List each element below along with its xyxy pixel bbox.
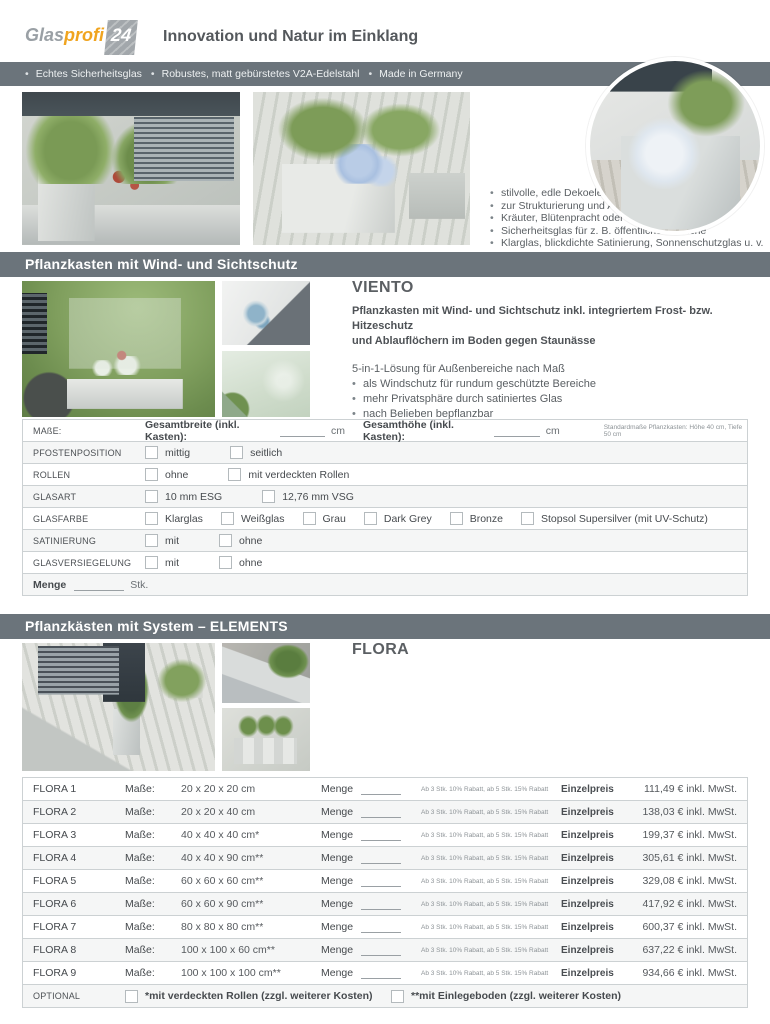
einzelpreis-label: Einzelpreis [561,945,627,956]
form-options: ohnemit verdeckten Rollen [145,468,389,481]
form-row-glasversiegelung: GLASVERSIEGELUNGmitohne [22,551,748,574]
option-label: Klarglas [165,513,203,525]
unit-label: cm [331,425,345,437]
product-name: FLORA 4 [33,852,125,864]
spacer [352,349,757,362]
flora-price-table: FLORA 1Maße:20 x 20 x 20 cmMengeAb 3 Stk… [22,778,748,1008]
checkbox-icon[interactable] [145,468,158,481]
menge-input[interactable] [361,898,401,910]
gesamtbreite-input[interactable] [280,425,325,437]
option-ohne[interactable]: ohne [219,534,262,547]
rabatt-note: Ab 3 Stk. 10% Rabatt, ab 5 Stk. 15% Raba… [421,878,561,885]
menge-unit-label: Stk. [130,579,148,591]
masse-label: Maße: [125,783,181,795]
terrace-photo-right [253,92,470,245]
einzelpreis-label: Einzelpreis [561,899,627,910]
product-name: FLORA 8 [33,944,125,956]
option-label: Grau [323,513,346,525]
option-mit[interactable]: mit [145,556,179,569]
rabatt-note: Ab 3 Stk. 10% Rabatt, ab 5 Stk. 15% Raba… [421,855,561,862]
masse-label: Maße: [125,944,181,956]
masse-label: Maße: [125,921,181,933]
page-header: Glasprofi24 Innovation und Natur im Eink… [0,0,770,62]
checkbox-icon[interactable] [145,490,158,503]
flora-edge-detail-photo [222,643,310,703]
flora-row-flora-2: FLORA 2Maße:20 x 20 x 40 cmMengeAb 3 Stk… [22,800,748,824]
product-size: 20 x 20 x 20 cm [181,783,321,795]
einzelpreis-label: Einzelpreis [561,807,627,818]
bullet-icon: • [25,68,29,80]
viento-bullet: als Windschutz für rundum geschützte Ber… [352,377,757,392]
product-name: FLORA 3 [33,829,125,841]
form-options: 10 mm ESG12,76 mm VSG [145,490,394,503]
menge-input[interactable] [361,944,401,956]
einzelpreis-label: Einzelpreis [561,968,627,979]
rabatt-note: Ab 3 Stk. 10% Rabatt, ab 5 Stk. 15% Raba… [421,809,561,816]
checkbox-icon[interactable] [391,990,404,1003]
option-label: **mit Einlegeboden (zzgl. weiterer Koste… [411,990,621,1002]
rabatt-note: Ab 3 Stk. 10% Rabatt, ab 5 Stk. 15% Raba… [421,901,561,908]
logo-part-glas: Glas [25,25,64,45]
checkbox-icon[interactable] [521,512,534,525]
menge-input[interactable] [361,783,401,795]
option-label: Bronze [470,513,503,525]
option-label: ohne [165,469,188,481]
product-name: FLORA 5 [33,875,125,887]
option-label: ohne [239,535,262,547]
form-row-satinierung: SATINIERUNGmitohne [22,529,748,552]
menge-field: Menge [321,852,421,864]
rabatt-note: Ab 3 Stk. 10% Rabatt, ab 5 Stk. 15% Raba… [421,947,561,954]
einzelpreis-label: Einzelpreis [561,830,627,841]
checkbox-icon[interactable] [219,534,232,547]
price-value: 637,22 € inkl. MwSt. [627,944,737,956]
form-options: mitohne [145,556,302,569]
rabatt-note: Ab 3 Stk. 10% Rabatt, ab 5 Stk. 15% Raba… [421,924,561,931]
masse-label: Maße: [125,898,181,910]
form-row-glasfarbe: GLASFARBEKlarglasWeißglasGrauDark GreyBr… [22,507,748,530]
form-row-rollen: ROLLENohnemit verdeckten Rollen [22,463,748,486]
price-value: 600,37 € inkl. MwSt. [627,921,737,933]
viento-desc-line: und Ablauflöchern im Boden gegen Staunäs… [352,334,757,349]
einzelpreis-label: Einzelpreis [561,784,627,795]
menge-label: Menge [321,875,353,887]
menge-label: Menge [321,898,353,910]
optional-label: OPTIONAL [33,991,125,1001]
product-size: 80 x 80 x 80 cm** [181,921,321,933]
rabatt-note: Ab 3 Stk. 10% Rabatt, ab 5 Stk. 15% Raba… [421,832,561,839]
feature-item: Made in Germany [379,68,462,80]
menge-field: Menge [321,921,421,933]
menge-label: Menge [321,783,353,795]
menge-field: Menge [321,829,421,841]
option-label: ohne [239,557,262,569]
menge-input[interactable] [361,806,401,818]
checkbox-icon[interactable] [221,512,234,525]
form-row-glasart: GLASART10 mm ESG12,76 mm VSG [22,485,748,508]
form-row-masse: MAßE: Gesamtbreite (inkl. Kasten): cm Ge… [22,419,748,442]
feature-item: Echtes Sicherheitsglas [36,68,142,80]
checkbox-icon[interactable] [125,990,138,1003]
product-size: 100 x 100 x 60 cm** [181,944,321,956]
page-tagline: Innovation und Natur im Einklang [163,28,418,46]
viento-photo-main [22,281,215,417]
section-title: Pflanzkästen mit System – ELEMENTS [25,618,288,634]
menge-input[interactable] [361,921,401,933]
menge-input[interactable] [361,852,401,864]
checkbox-icon[interactable] [145,556,158,569]
feature-item: Robustes, matt gebürstetes V2A-Edelstahl [162,68,360,80]
viento-order-form: MAßE: Gesamtbreite (inkl. Kasten): cm Ge… [22,420,748,596]
flora-product-rows: FLORA 1Maße:20 x 20 x 20 cmMengeAb 3 Stk… [22,777,748,985]
menge-input[interactable] [361,967,401,979]
menge-label: Menge [321,967,353,979]
menge-input[interactable] [74,579,124,591]
form-options: mitohne [145,534,302,547]
product-name: FLORA 1 [33,783,125,795]
section-title: Pflanzkasten mit Wind- und Sichtschutz [25,256,298,272]
form-row-label: ROLLEN [33,470,145,480]
flora-row-flora-5: FLORA 5Maße:60 x 60 x 60 cm**MengeAb 3 S… [22,869,748,893]
flora-row-photo [222,708,310,771]
option-ohne[interactable]: ohne [219,556,262,569]
form-options: KlarglasWeißglasGrauDark GreyBronzeStops… [145,512,726,525]
rabatt-note: Ab 3 Stk. 10% Rabatt, ab 5 Stk. 15% Raba… [421,970,561,977]
option-mit-verdeckten-rollen[interactable]: mit verdeckten Rollen [228,468,349,481]
intro-bullet: Sicherheitsglas für z. B. öffentliche Be… [490,225,770,238]
menge-field: Menge [321,967,421,979]
checkbox-icon[interactable] [364,512,377,525]
product-name: FLORA 9 [33,967,125,979]
option-label: seitlich [250,447,282,459]
option-label: mit verdeckten Rollen [248,469,349,481]
optional-options: *mit verdeckten Rollen (zzgl. weiterer K… [125,990,657,1003]
menge-label: Menge [321,921,353,933]
form-row-pfostenposition: PFOSTENPOSITIONmittigseitlich [22,441,748,464]
menge-label: Menge [321,829,353,841]
optional-row: OPTIONAL *mit verdeckten Rollen (zzgl. w… [22,984,748,1008]
checkbox-icon[interactable] [450,512,463,525]
option-klarglas[interactable]: Klarglas [145,512,203,525]
gesamthoehe-input[interactable] [494,425,539,437]
product-name: FLORA 6 [33,898,125,910]
bullet-icon: • [151,68,155,80]
viento-desc-line: Pflanzkasten mit Wind- und Sichtschutz i… [352,304,757,334]
checkbox-icon[interactable] [145,512,158,525]
flora-row-flora-7: FLORA 7Maße:80 x 80 x 80 cm**MengeAb 3 S… [22,915,748,939]
checkbox-icon[interactable] [303,512,316,525]
einzelpreis-label: Einzelpreis [561,853,627,864]
spacer [352,666,757,679]
form-option-rows: PFOSTENPOSITIONmittigseitlichROLLENohnem… [22,441,748,574]
product-name: FLORA 2 [33,806,125,818]
flora-row-flora-3: FLORA 3Maße:40 x 40 x 40 cm*MengeAb 3 St… [22,823,748,847]
optional-option-mit-einlegeboden-zzgl-weiterer-kosten[interactable]: **mit Einlegeboden (zzgl. weiterer Koste… [391,990,657,1003]
gesamtbreite-label: Gesamtbreite (inkl. Kasten): [145,419,272,443]
masse-label: Maße: [125,806,181,818]
flora-row-flora-9: FLORA 9Maße:100 x 100 x 100 cm**MengeAb … [22,961,748,985]
form-row-label: PFOSTENPOSITION [33,448,145,458]
standard-masse-note: Standardmaße Pflanzkasten: Höhe 40 cm, T… [604,424,747,438]
bullet-icon: • [368,68,372,80]
flora-description: FLORA [352,641,757,679]
flora-photo-main [22,643,215,771]
gesamthoehe-label: Gesamthöhe (inkl. Kasten): [363,419,486,443]
masse-label: Maße: [125,829,181,841]
option-label: Dark Grey [384,513,432,525]
einzelpreis-label: Einzelpreis [561,876,627,887]
menge-field: Menge [321,898,421,910]
optional-option-mit-verdeckten-rollen-zzgl-weiterer-kosten[interactable]: *mit verdeckten Rollen (zzgl. weiterer K… [125,990,391,1003]
flora-row-flora-1: FLORA 1Maße:20 x 20 x 20 cmMengeAb 3 Stk… [22,777,748,801]
viento-bullet: mehr Privatsphäre durch satiniertes Glas [352,392,757,407]
price-value: 305,61 € inkl. MwSt. [627,852,737,864]
checkbox-icon[interactable] [219,556,232,569]
einzelpreis-label: Einzelpreis [561,922,627,933]
price-value: 417,92 € inkl. MwSt. [627,898,737,910]
section-header-elements: Pflanzkästen mit System – ELEMENTS [0,614,770,639]
flora-row-flora-4: FLORA 4Maße:40 x 40 x 90 cm**MengeAb 3 S… [22,846,748,870]
rabatt-note: Ab 3 Stk. 10% Rabatt, ab 5 Stk. 15% Raba… [421,786,561,793]
price-value: 111,49 € inkl. MwSt. [627,783,737,795]
flora-row-flora-8: FLORA 8Maße:100 x 100 x 60 cm**MengeAb 3… [22,938,748,962]
product-size: 20 x 20 x 40 cm [181,806,321,818]
section-header-wind-sichtschutz: Pflanzkasten mit Wind- und Sichtschutz [0,252,770,277]
glass-detail-photo [222,351,310,417]
form-options: mittigseitlich [145,446,322,459]
product-size: 60 x 60 x 60 cm** [181,875,321,887]
option-wei-glas[interactable]: Weißglas [221,512,285,525]
catalog-page: Glasprofi24 Innovation und Natur im Eink… [0,0,770,1024]
option-label: mit [165,557,179,569]
planter-circle-photo [586,57,764,235]
viento-lead-line: 5-in-1-Lösung für Außenbereiche nach Maß [352,362,757,377]
option-12-76-mm-vsg[interactable]: 12,76 mm VSG [262,490,354,503]
menge-field: Menge [321,944,421,956]
logo-part-24: 24 [104,20,138,55]
product-size: 100 x 100 x 100 cm** [181,967,321,979]
glasprofi24-logo: Glasprofi24 [25,20,136,55]
form-row-label: SATINIERUNG [33,536,145,546]
checkbox-icon[interactable] [145,534,158,547]
option-mittig[interactable]: mittig [145,446,190,459]
price-value: 138,03 € inkl. MwSt. [627,806,737,818]
option-label: Weißglas [241,513,285,525]
menge-field: Menge [321,806,421,818]
option-label: Stopsol Supersilver (mit UV-Schutz) [541,513,708,525]
form-row-label: GLASART [33,492,145,502]
checkbox-icon[interactable] [228,468,241,481]
option-label: 12,76 mm VSG [282,491,354,503]
flora-row-flora-6: FLORA 6Maße:60 x 60 x 90 cm**MengeAb 3 S… [22,892,748,916]
lock-detail-photo [222,281,310,345]
option-10-mm-esg[interactable]: 10 mm ESG [145,490,222,503]
price-value: 199,37 € inkl. MwSt. [627,829,737,841]
form-row-label: MAßE: [33,426,145,436]
menge-label: Menge [321,852,353,864]
terrace-photo-left [22,92,240,245]
option-label: mittig [165,447,190,459]
option-stopsol-supersilver-mit-uv-schutz[interactable]: Stopsol Supersilver (mit UV-Schutz) [521,512,708,525]
masse-label: Maße: [125,852,181,864]
option-seitlich[interactable]: seitlich [230,446,282,459]
product-size: 60 x 60 x 90 cm** [181,898,321,910]
product-size: 40 x 40 x 40 cm* [181,829,321,841]
option-dark-grey[interactable]: Dark Grey [364,512,432,525]
logo-part-profi: profi [64,25,104,45]
viento-bold-description: Pflanzkasten mit Wind- und Sichtschutz i… [352,304,757,349]
option-grau[interactable]: Grau [303,512,346,525]
menge-label: Menge [321,944,353,956]
form-row-label: GLASFARBE [33,514,145,524]
masse-label: Maße: [125,875,181,887]
option-mit[interactable]: mit [145,534,179,547]
form-row-menge: Menge Stk. [22,573,748,596]
option-label: *mit verdeckten Rollen (zzgl. weiterer K… [145,990,373,1002]
checkbox-icon[interactable] [262,490,275,503]
option-ohne[interactable]: ohne [145,468,188,481]
price-value: 329,08 € inkl. MwSt. [627,875,737,887]
feature-items: •Echtes Sicherheitsglas•Robustes, matt g… [25,68,472,80]
masse-label: Maße: [125,967,181,979]
product-name: FLORA 7 [33,921,125,933]
flora-product-title: FLORA [352,641,757,659]
menge-label: Menge [321,806,353,818]
menge-label: Menge [33,579,66,591]
product-size: 40 x 40 x 90 cm** [181,852,321,864]
menge-input[interactable] [361,829,401,841]
viento-product-title: VIENTO [352,279,757,297]
menge-input[interactable] [361,875,401,887]
option-label: 10 mm ESG [165,491,222,503]
unit-label: cm [546,425,560,437]
menge-field: Menge [321,875,421,887]
form-row-label: GLASVERSIEGELUNG [33,558,145,568]
menge-field: Menge [321,783,421,795]
checkbox-icon[interactable] [230,446,243,459]
price-value: 934,66 € inkl. MwSt. [627,967,737,979]
option-bronze[interactable]: Bronze [450,512,503,525]
option-label: mit [165,535,179,547]
checkbox-icon[interactable] [145,446,158,459]
